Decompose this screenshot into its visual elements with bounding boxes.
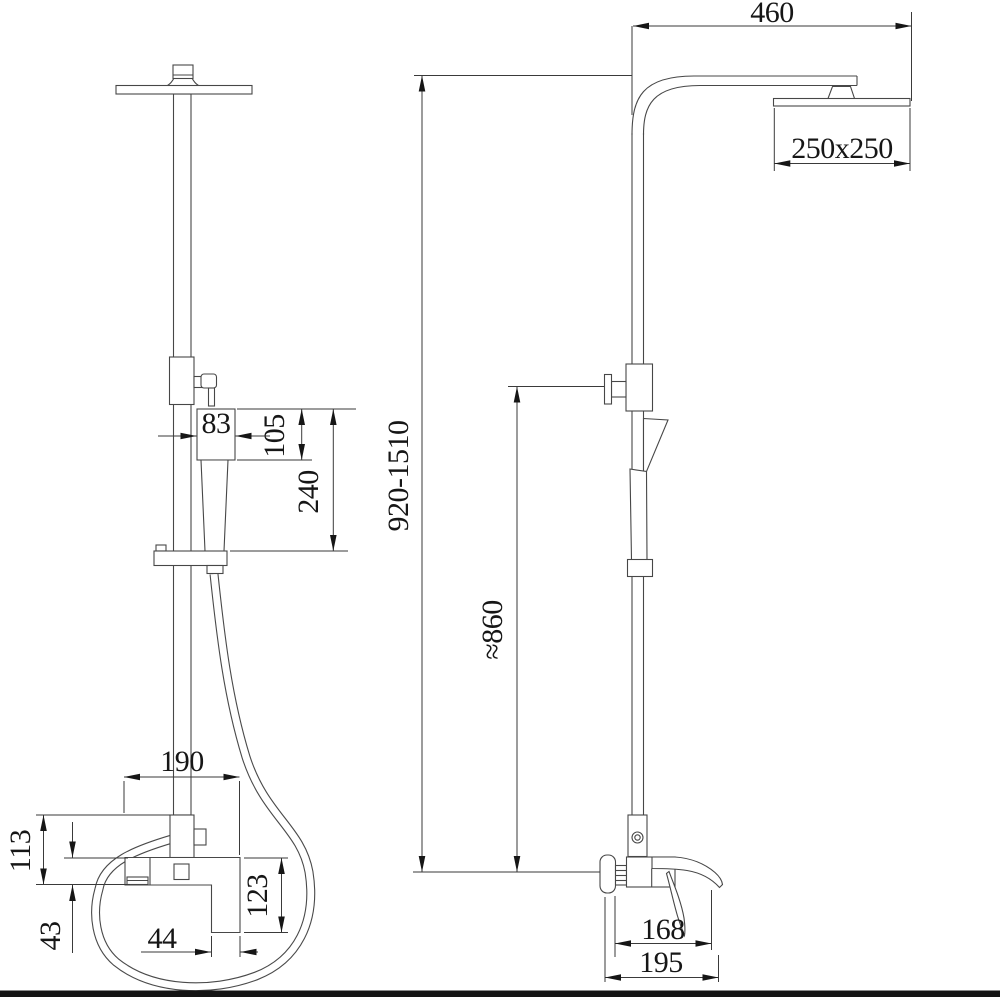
rain-head-plate-front	[116, 86, 252, 95]
holder-tab	[156, 545, 166, 551]
dim-190-label: 190	[160, 745, 204, 778]
riser-pole-front	[174, 94, 192, 815]
dim-83-label: 83	[202, 407, 231, 440]
hose-connector	[207, 566, 223, 574]
wall-mount-plate	[600, 855, 616, 893]
slider-bracket-side	[605, 364, 653, 411]
rain-shower-head-side	[774, 87, 911, 107]
dim-head-size: 250x250	[774, 108, 910, 171]
dim-195-label: 195	[639, 946, 683, 979]
pole-base	[170, 815, 194, 858]
dim-arm-reach: 460	[632, 0, 912, 115]
bottom-border-bar	[0, 991, 1000, 998]
knob-cap-side	[605, 375, 612, 405]
dim-920-1510-label: 920-1510	[382, 421, 415, 532]
hand-shower-handle	[201, 460, 228, 551]
knob-stem	[209, 388, 215, 406]
dim-44-label: 44	[148, 922, 178, 955]
head-connector	[173, 65, 193, 79]
head-connector-flare	[168, 78, 199, 86]
hand-shower-side	[628, 419, 669, 577]
riser-pole-side	[632, 76, 857, 815]
dim-mixer-body-height: 123	[241, 858, 288, 933]
slider-bracket-front	[170, 357, 217, 406]
dim-column-height: 920-1510	[382, 76, 632, 873]
side-view: 460 250x250 920-1510 ≈860 168	[382, 0, 912, 982]
holder-bar	[154, 551, 227, 566]
shower-hose	[96, 574, 311, 987]
front-view: 83 105 240 190 113	[4, 65, 356, 987]
dim-hose-height: ≈860	[476, 387, 604, 873]
dim-860-label: ≈860	[476, 600, 509, 659]
shower-column-drawing: 83 105 240 190 113	[0, 0, 1000, 1000]
dim-113-label: 113	[4, 830, 37, 872]
hand-shower-head-side	[644, 419, 669, 472]
rain-head-plate-side	[774, 99, 911, 107]
dim-43-label: 43	[34, 922, 67, 951]
mixer-emblem	[174, 864, 189, 880]
rain-shower-head-front	[116, 65, 252, 94]
head-swivel-connector	[828, 87, 855, 99]
pole-base-side	[628, 815, 647, 857]
dim-123-label: 123	[241, 874, 274, 918]
dim-105-label: 105	[258, 414, 291, 458]
holder-side	[628, 560, 653, 577]
hand-shower-handle-side	[630, 469, 647, 560]
dim-250x250-label: 250x250	[791, 132, 893, 165]
knob-neck-side	[612, 382, 627, 398]
dim-460-label: 460	[750, 0, 794, 29]
dim-168-label: 168	[641, 913, 685, 946]
dim-240-label: 240	[292, 470, 325, 514]
dim-hand-shower-head-height: 105	[237, 409, 356, 460]
hose-outlet	[194, 829, 206, 845]
dim-spout-height: 43	[34, 822, 128, 953]
knob-lever	[201, 374, 217, 388]
mixer-front	[125, 815, 240, 933]
technical-drawing-page: 83 105 240 190 113	[0, 0, 1000, 1000]
